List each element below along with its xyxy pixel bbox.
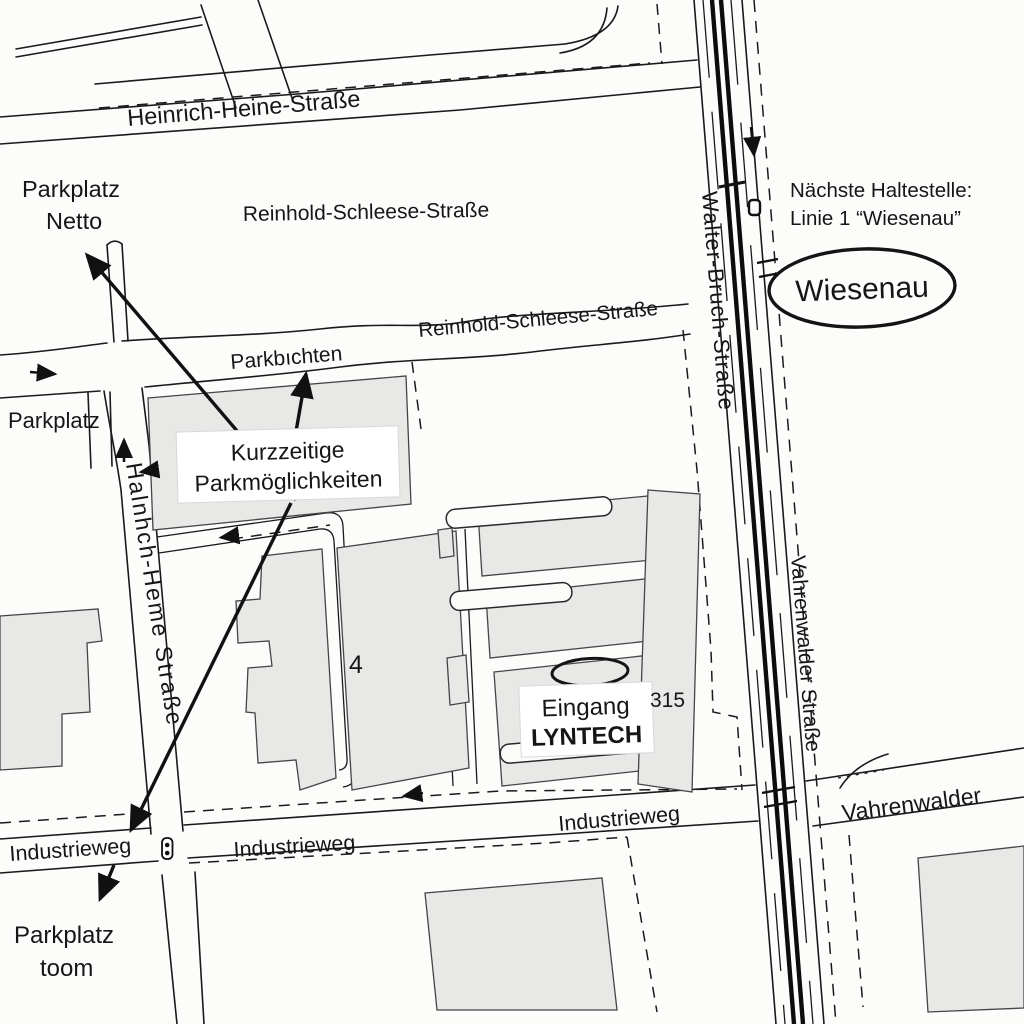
building-number-4: 4 — [349, 651, 363, 679]
next-stop-note: Nächste Haltestelle: — [790, 179, 972, 202]
parkplatz-netto-label: Netto — [46, 208, 102, 234]
building — [438, 528, 454, 558]
building — [0, 609, 102, 770]
eingang-label: Eingang — [541, 692, 630, 722]
kurzzeitige-label: Parkmöglichkeiten — [194, 465, 383, 496]
tram-direction-arrow-icon — [751, 127, 754, 155]
street-label-industrieweg-west: Industrieweg — [9, 834, 132, 866]
site-map-image: Heinrich-Heine-Straße Reinhold-Schleese-… — [0, 0, 1024, 1024]
one-way-arrow-west-icon — [221, 536, 233, 538]
parkplatz-toom-label: toom — [40, 955, 93, 982]
tram-station-tick-icon — [719, 182, 745, 187]
street-label-vahrenwalder-horizontal: Vahrenwalder — [840, 782, 983, 826]
kurzzeitige-label: Kurzzeitige — [230, 436, 344, 465]
street-label-reinhold-schleese-lower: Reinhold-Schleese-Straße — [417, 297, 659, 342]
street-label-reinhold-schleese-upper: Reinhold-Schleese-Straße — [243, 199, 490, 226]
eingang-label: LYNTECH — [531, 721, 643, 752]
building-number-315: 315 — [650, 689, 685, 712]
tram-stop-sign-icon — [749, 200, 760, 215]
traffic-light-icon — [162, 838, 173, 859]
parkplatz-west-label: Parkplatz — [8, 408, 100, 433]
building — [425, 878, 617, 1010]
tram-corridor — [694, 0, 836, 1024]
parkplatz-netto-label: Parkplatz — [22, 176, 120, 202]
wiesenau-stop-label: Wiesenau — [795, 271, 929, 309]
arrow-to-parkplatz-toom — [100, 865, 114, 899]
tram-rail — [721, 0, 803, 1024]
one-way-arrow-east-icon — [30, 372, 55, 374]
building — [918, 846, 1024, 1012]
street-label-walter-bruch: Walter-Bruch-Straße — [697, 190, 739, 411]
parkplatz-toom-label: Parkplatz — [14, 922, 114, 949]
street-label-vahrenwalder-vertical: Vahrenwalder Straße — [786, 555, 824, 753]
next-stop-note: Linie 1 “Wiesenau” — [790, 207, 961, 230]
street-label-heinrich-heine: Heinrich-Heine-Straße — [126, 86, 361, 131]
site-map: Heinrich-Heine-Straße Reinhold-Schleese-… — [0, 0, 1024, 1024]
street-label-industrieweg-center: Industrieweg — [233, 831, 356, 862]
one-way-arrow-west-icon — [404, 793, 423, 796]
building — [447, 655, 469, 705]
